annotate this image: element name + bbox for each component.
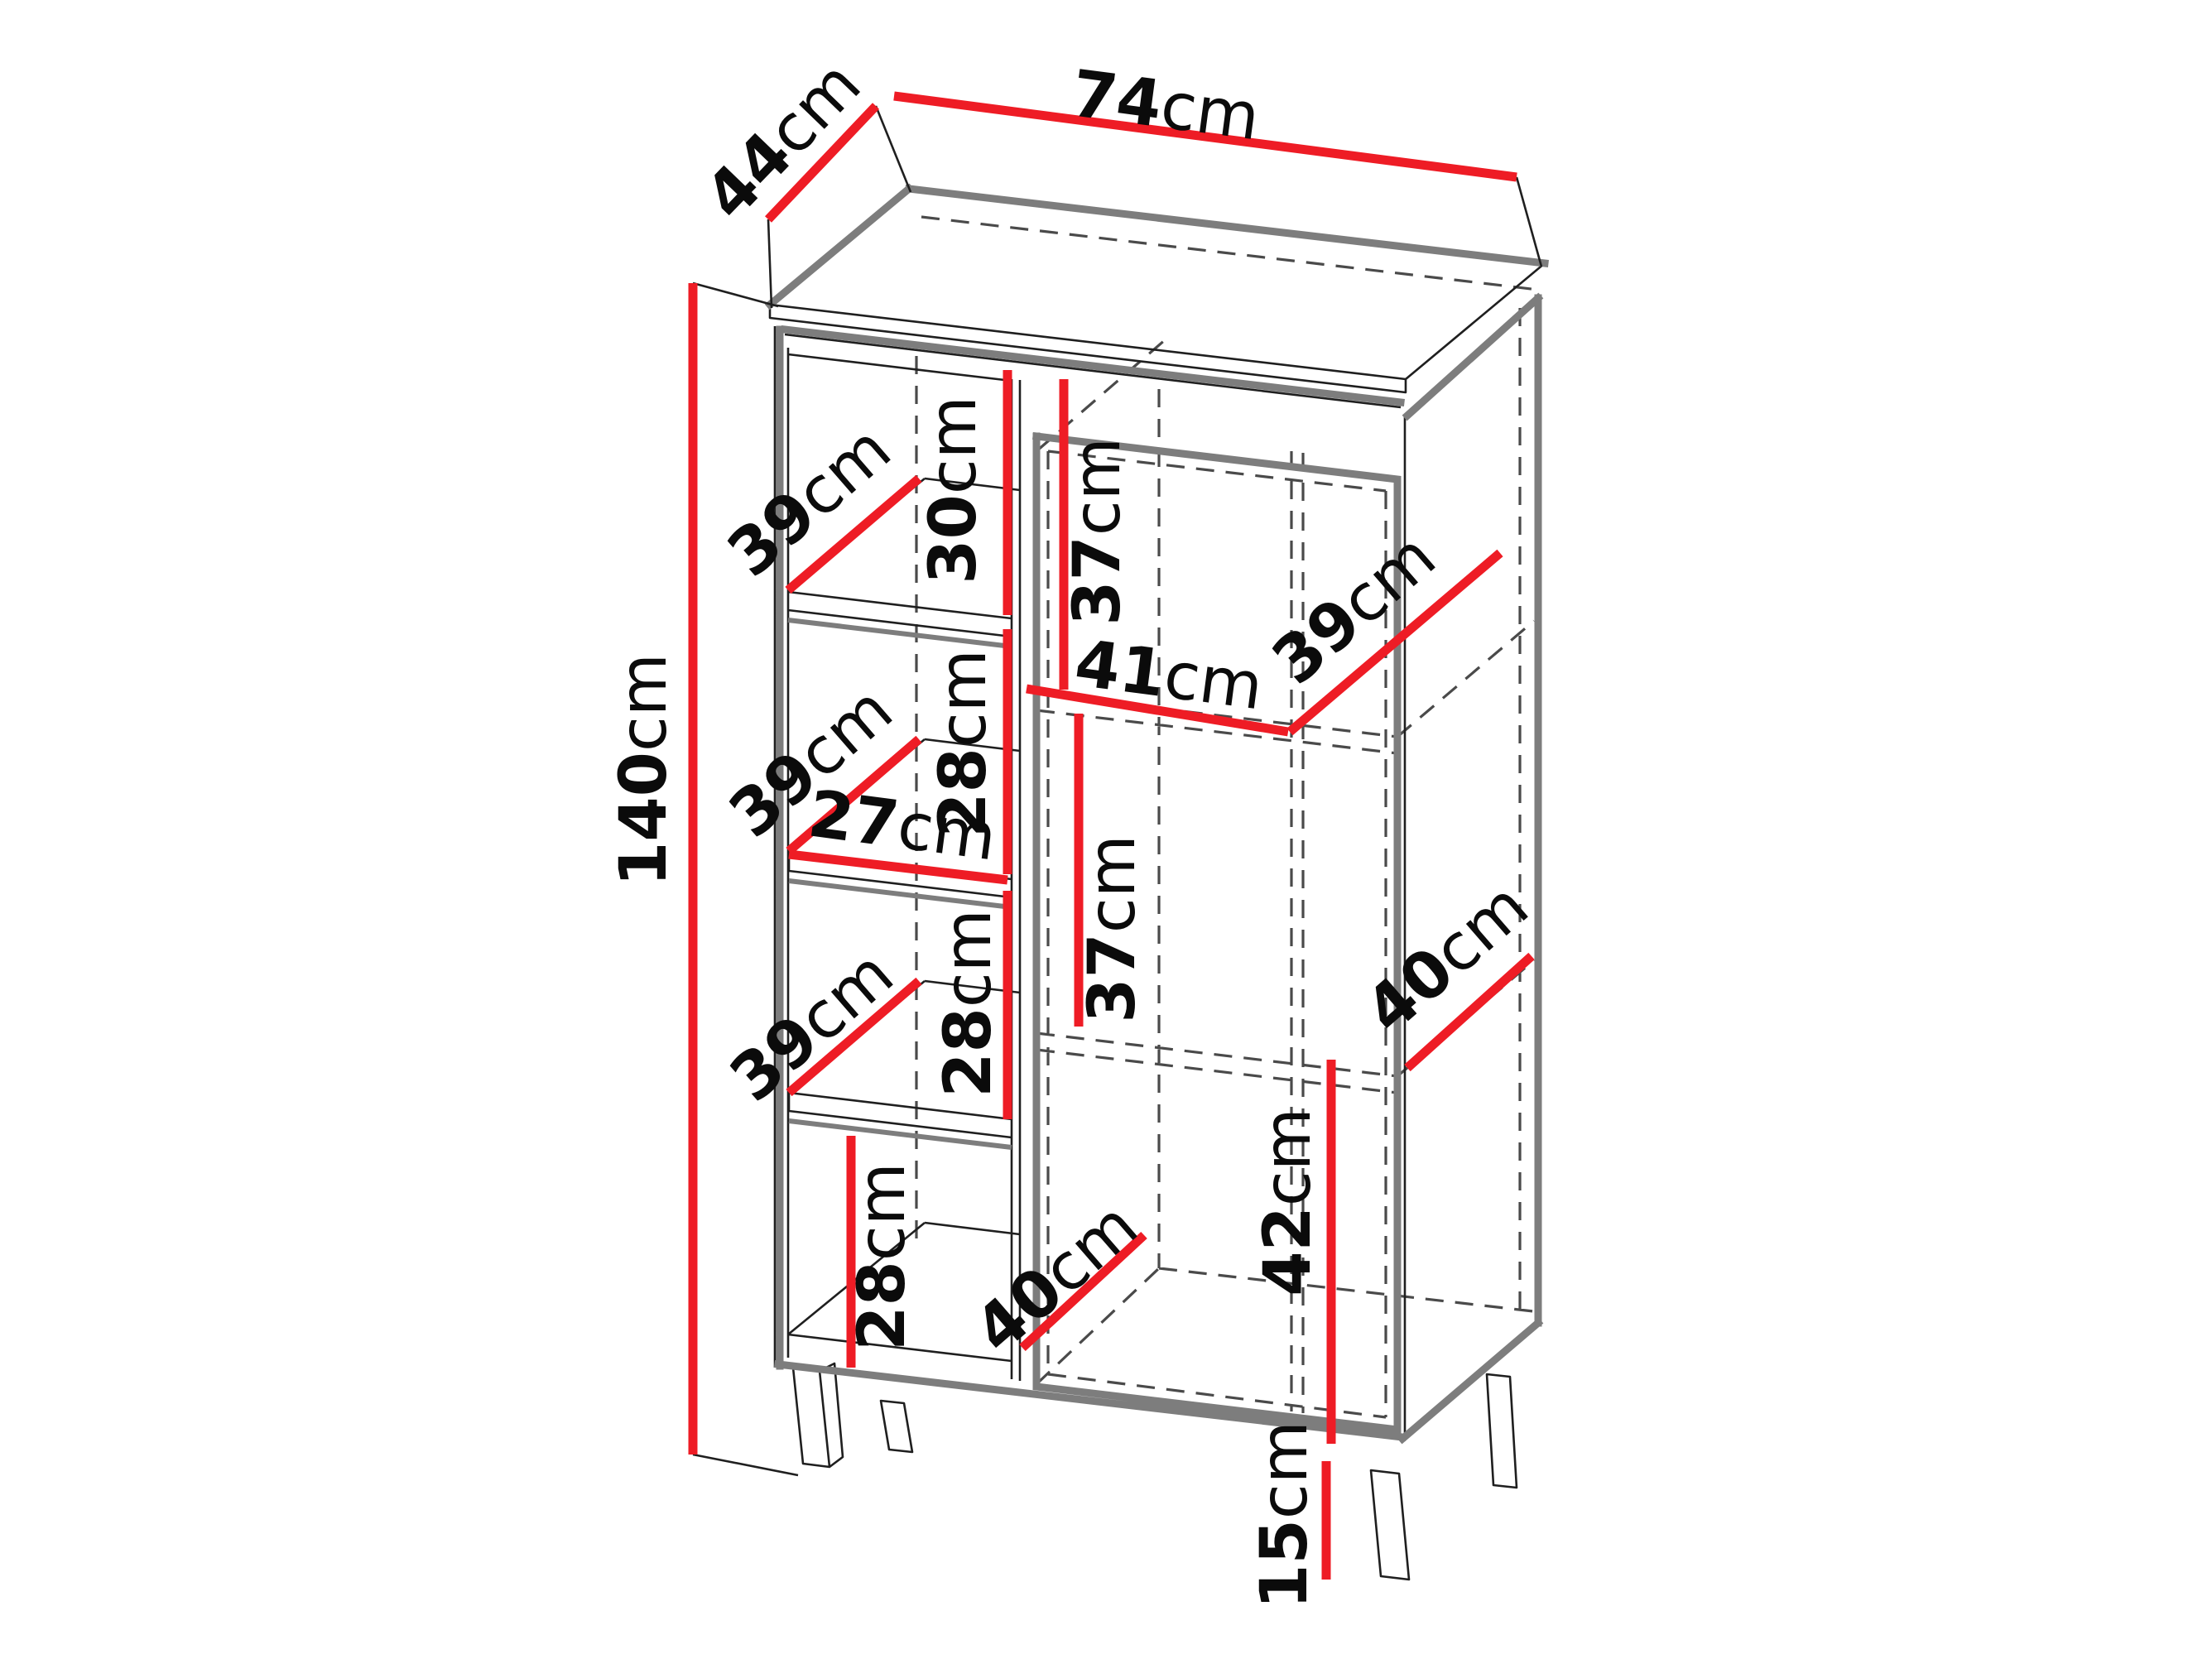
dimension-extension-line — [876, 106, 911, 192]
dimension-unit: cm — [845, 1162, 920, 1261]
dimension-value: 37 — [1060, 536, 1135, 626]
dimension-value: 27 — [804, 777, 902, 863]
dimension-extension-line — [693, 283, 778, 306]
dimension-label: 42cm — [1251, 1108, 1325, 1296]
dimension-label: 37cm — [1075, 834, 1150, 1022]
dimension-label: 37cm — [1060, 437, 1135, 625]
dimension-value: 28 — [931, 1007, 1006, 1098]
dimension-value: 140 — [607, 752, 681, 887]
dimension-right-shelf1-depth: 39cm — [1259, 519, 1500, 732]
dimension-extension-line — [693, 1455, 798, 1475]
dimension-extension-line — [1517, 177, 1541, 267]
dimension-unit: cm — [916, 396, 991, 494]
dimension-value: 28 — [926, 748, 1001, 838]
dimension-label: 39cm — [717, 936, 908, 1116]
dimension-right-floor-depth: 40cm — [961, 1188, 1152, 1368]
dimension-shelf1-depth: 39cm — [714, 411, 919, 591]
dimension-leg-height: 15cm — [1248, 1421, 1326, 1609]
dimension-unit: cm — [607, 653, 681, 752]
dimension-overall-width: 74cm — [894, 57, 1541, 267]
dimension-value: 30 — [916, 494, 991, 584]
dimension-unit: cm — [1156, 69, 1264, 156]
dimension-label: 15cm — [1248, 1421, 1322, 1609]
dimension-value: 15 — [1248, 1519, 1322, 1609]
dimension-label: 140cm — [607, 653, 681, 887]
dimension-unit: cm — [926, 649, 1001, 748]
dimension-unit: cm — [1060, 437, 1135, 536]
dimension-value: 42 — [1251, 1206, 1325, 1296]
dimension-unit: cm — [1075, 834, 1150, 933]
dimension-label: 39cm — [714, 411, 906, 591]
dimension-value: 28 — [845, 1261, 920, 1351]
dimension-label: 30cm — [916, 396, 991, 584]
dimension-label: 40cm — [1352, 868, 1543, 1048]
cabinet-dimension-diagram: 44cm74cm140cm39cm30cm37cm41cm39cm39cm27c… — [0, 0, 2212, 1659]
dimension-right-shelf2-depth: 40cm — [1352, 868, 1543, 1068]
dimension-compartment3-height: 28cm — [931, 891, 1007, 1119]
dimension-overall-height: 140cm — [607, 283, 798, 1475]
dimension-label: 40cm — [961, 1188, 1152, 1368]
dimension-label: 74cm — [1067, 57, 1263, 156]
dimension-label: 28cm — [926, 649, 1001, 837]
dimension-unit: cm — [1160, 638, 1267, 725]
dimension-shelf3-depth: 39cm — [717, 936, 919, 1116]
dimension-value: 37 — [1075, 933, 1150, 1023]
dimension-value: 41 — [1070, 627, 1169, 712]
dimension-overall-depth: 44cm — [691, 47, 911, 308]
dimension-extension-line — [768, 219, 772, 308]
dimension-value: 74 — [1067, 57, 1166, 142]
dimension-compartment4-height: 28cm — [845, 1136, 920, 1368]
dimension-label: 28cm — [845, 1162, 920, 1350]
cabinet-dimension-diagram-page: 44cm74cm140cm39cm30cm37cm41cm39cm39cm27c… — [0, 0, 2212, 1659]
dimension-unit: cm — [1248, 1421, 1322, 1519]
dimension-compartment2-height: 28cm — [926, 629, 1007, 874]
dimension-label: 41cm — [1070, 627, 1267, 725]
dimension-label: 28cm — [931, 909, 1006, 1097]
dimension-unit: cm — [1251, 1108, 1325, 1206]
dimension-annotations: 44cm74cm140cm39cm30cm37cm41cm39cm39cm27c… — [607, 47, 1542, 1609]
dimension-unit: cm — [931, 909, 1006, 1007]
dimension-right-comp2-height: 37cm — [1075, 714, 1150, 1027]
dimension-compartment1-height: 30cm — [916, 370, 1007, 615]
